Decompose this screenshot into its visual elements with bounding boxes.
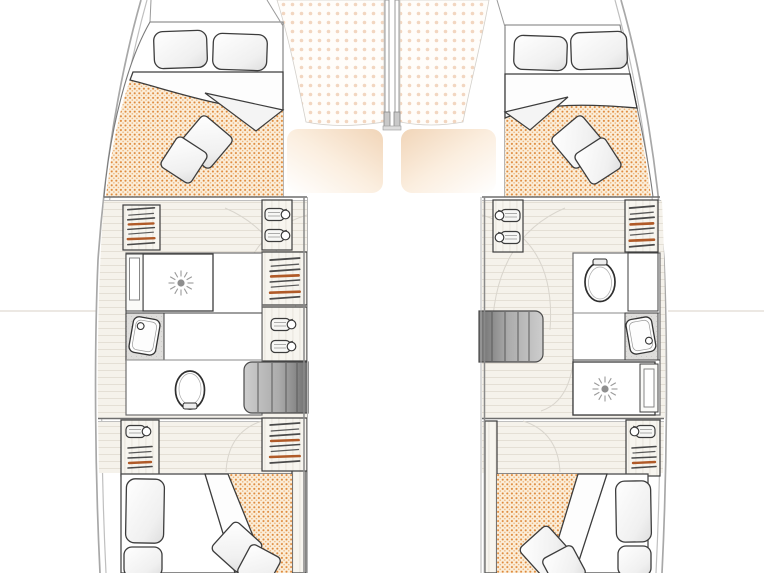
port-midship bbox=[98, 197, 308, 418]
companionway-steps-icon bbox=[244, 362, 308, 413]
catamaran-deck-plan bbox=[0, 0, 764, 573]
towel-shelf-icon bbox=[126, 426, 151, 438]
port-aft-pillow-1 bbox=[125, 479, 164, 544]
towel-shelf-icon bbox=[265, 230, 290, 242]
toilet-icon bbox=[585, 263, 615, 302]
port-towel-shelf-fwd bbox=[262, 200, 292, 250]
bridgedeck-windshield bbox=[287, 129, 496, 193]
port-locker-aft-outer bbox=[121, 420, 159, 476]
port-washbasin bbox=[126, 313, 164, 360]
towel-shelf-icon bbox=[271, 341, 296, 353]
towel-shelf-icon bbox=[495, 210, 520, 222]
port-hanging-locker-fwd bbox=[123, 205, 160, 250]
stbd-forward-pillow-1 bbox=[513, 35, 567, 71]
stbd-aft-pillow-2 bbox=[618, 546, 651, 573]
stbd-towel-shelf-fwd bbox=[493, 200, 523, 252]
port-bathroom bbox=[126, 253, 262, 415]
port-aft-cabin bbox=[98, 418, 307, 573]
stbd-midship bbox=[479, 197, 665, 418]
starboard-hull bbox=[479, 0, 666, 573]
trampoline-net-starboard-icon bbox=[400, 0, 489, 125]
port-aft-berth bbox=[121, 474, 292, 573]
stbd-companionway-steps bbox=[479, 311, 543, 362]
stbd-locker-aft-outer bbox=[626, 420, 660, 476]
port-towel-shelf-mid bbox=[262, 307, 307, 361]
trampoline-net-port-icon bbox=[277, 0, 384, 126]
stbd-hanging-locker-fwd bbox=[625, 200, 658, 252]
washbasin-icon bbox=[137, 322, 145, 330]
port-wardrobe-aft-inner bbox=[262, 418, 307, 471]
windshield-starboard-icon bbox=[401, 129, 496, 193]
windshield-port-icon bbox=[287, 129, 383, 193]
port-companionway-steps bbox=[244, 362, 308, 413]
towel-shelf-icon bbox=[271, 319, 296, 331]
mast-beam-icon bbox=[383, 0, 401, 130]
washbasin-icon bbox=[645, 337, 653, 345]
stbd-forward-pillow-2 bbox=[570, 31, 627, 70]
stbd-bathroom bbox=[573, 253, 660, 415]
foredeck bbox=[277, 0, 489, 130]
floorplan-canvas bbox=[0, 0, 764, 573]
stbd-aft-berth bbox=[497, 474, 652, 573]
port-aft-pillow-2 bbox=[124, 547, 162, 573]
port-forward-cabin bbox=[104, 0, 283, 197]
towel-shelf-icon bbox=[630, 426, 655, 438]
towel-shelf-icon bbox=[495, 232, 520, 244]
port-forward-pillow-1 bbox=[153, 30, 207, 69]
port-forward-pillow-2 bbox=[212, 33, 267, 71]
stbd-washbasin bbox=[625, 313, 658, 360]
towel-shelf-icon bbox=[265, 209, 290, 221]
stbd-aft-pillow-1 bbox=[615, 481, 651, 543]
companionway-steps-icon bbox=[479, 311, 543, 362]
port-wardrobe-mid bbox=[262, 252, 307, 305]
stbd-aft-cabin bbox=[482, 419, 664, 573]
port-toilet bbox=[176, 371, 205, 409]
port-hull bbox=[96, 0, 308, 573]
